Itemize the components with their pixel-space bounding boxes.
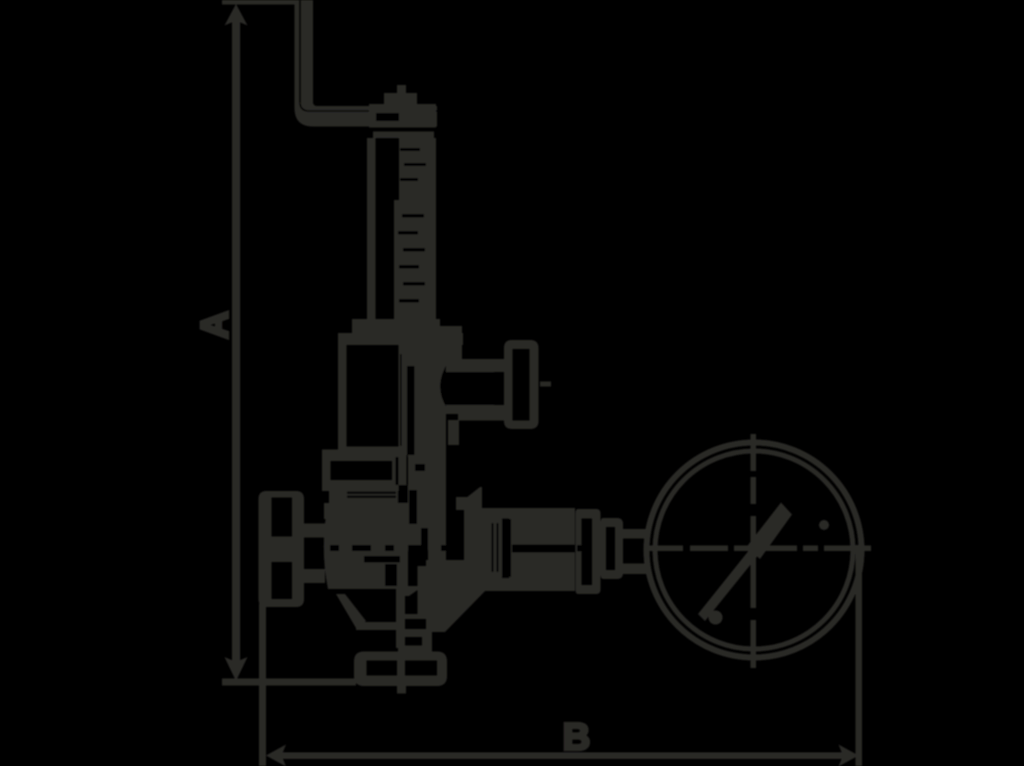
svg-text:B: B (563, 717, 590, 759)
svg-text:A: A (195, 311, 237, 338)
